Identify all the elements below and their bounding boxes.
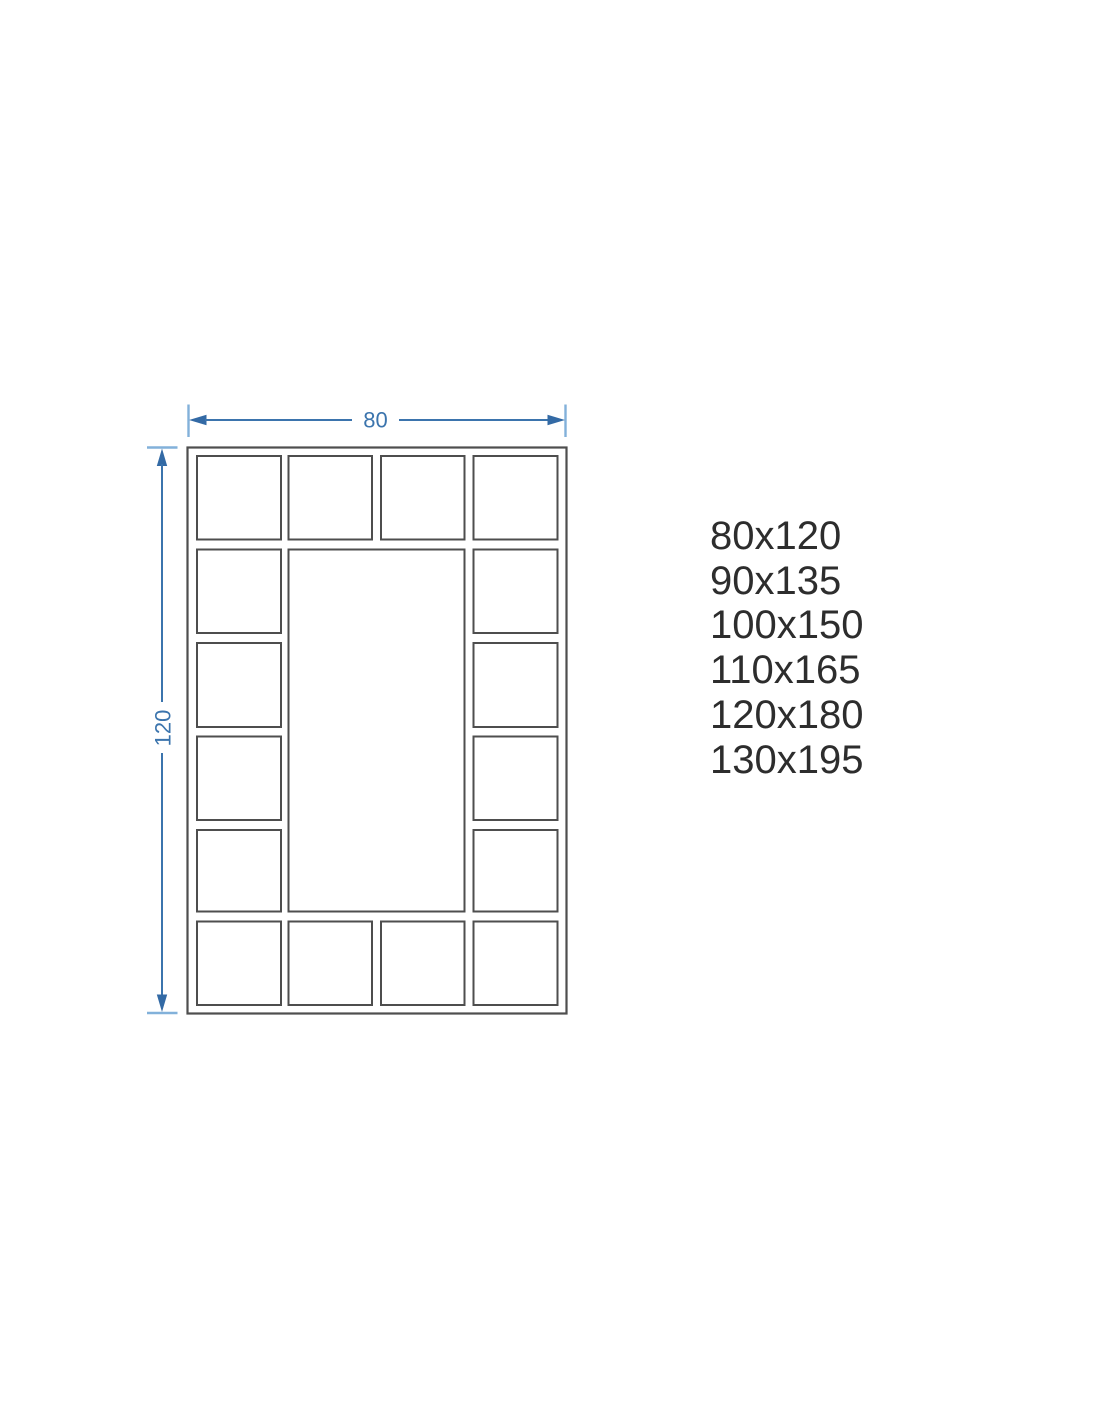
frame-panel (474, 550, 558, 634)
width-dimension: 80 (189, 405, 566, 438)
frame-panel (197, 643, 281, 727)
arrowhead-down-icon (157, 995, 167, 1013)
width-dimension-label: 80 (363, 408, 387, 433)
height-dimension-label: 120 (151, 710, 176, 747)
frame-panel (381, 456, 465, 540)
frame-panel (474, 830, 558, 912)
size-list-item: 80x120 (710, 514, 863, 559)
size-list: 80x120 90x135 100x150 110x165 120x180 13… (710, 514, 863, 782)
frame-panel (474, 922, 558, 1006)
size-list-item: 90x135 (710, 559, 863, 604)
size-list-item: 100x150 (710, 603, 863, 648)
frame-panel (197, 922, 281, 1006)
frame-panel (289, 456, 373, 540)
frame-panel (474, 643, 558, 727)
frame-panel (197, 737, 281, 821)
mirror-frame (188, 448, 567, 1014)
frame-panel (381, 922, 465, 1006)
size-list-item: 110x165 (710, 648, 863, 693)
page: 80 120 80x120 90x135 100x150 110x165 120… (0, 0, 1100, 1422)
frame-panel (474, 456, 558, 540)
frame-panel (474, 737, 558, 821)
arrowhead-left-icon (189, 415, 207, 425)
frame-panel (197, 456, 281, 540)
frame-center-panel (289, 550, 465, 912)
frame-outline (188, 448, 567, 1014)
arrowhead-up-icon (157, 449, 167, 467)
size-list-item: 120x180 (710, 693, 863, 738)
frame-panel (289, 922, 373, 1006)
frame-panel (197, 830, 281, 912)
size-list-item: 130x195 (710, 738, 863, 783)
height-dimension: 120 (147, 448, 178, 1014)
frame-panel (197, 550, 281, 634)
arrowhead-right-icon (548, 415, 566, 425)
technical-drawing: 80 120 (0, 0, 1100, 1422)
